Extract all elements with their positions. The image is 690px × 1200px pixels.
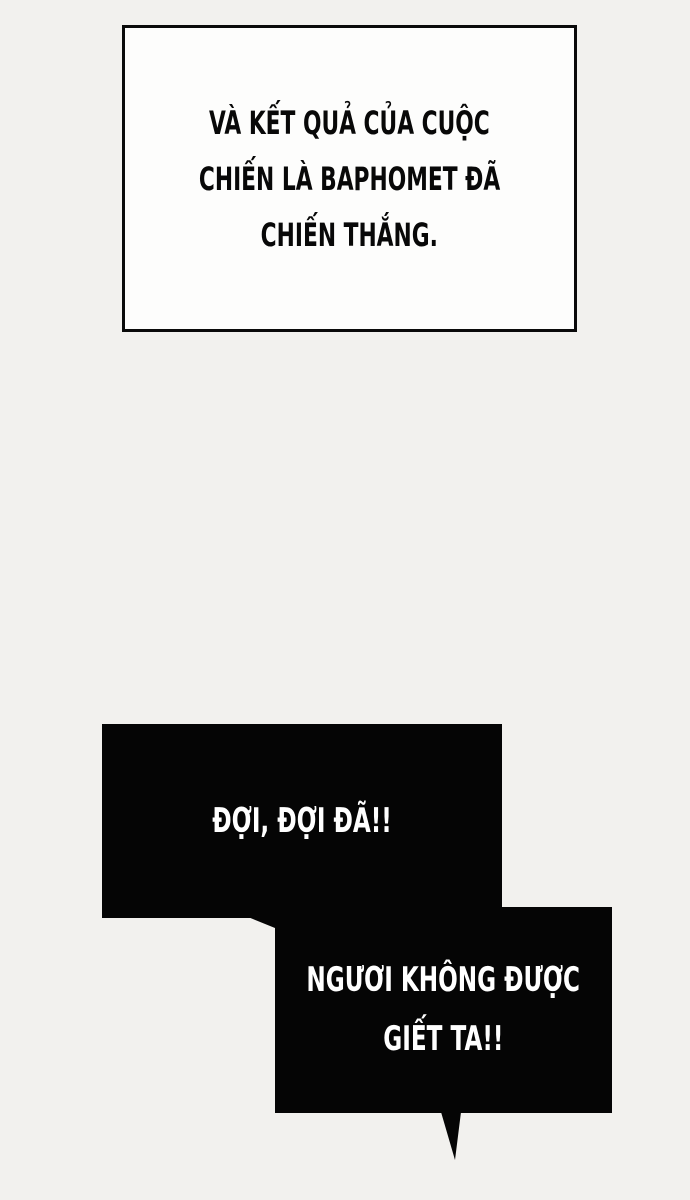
narration-line-1: VÀ KẾT QUẢ CỦA CUỘC xyxy=(209,95,490,151)
narration-line-3: CHIẾN THẮNG. xyxy=(261,207,438,263)
speech-bubble-1: ĐỢI, ĐỢI ĐÃ!! xyxy=(102,724,502,918)
speech-bubble-2-line-1: NGƯƠI KHÔNG ĐƯỢC xyxy=(307,951,581,1010)
speech-bubble-1-step xyxy=(248,917,275,928)
speech-bubble-2-tail-icon xyxy=(441,1112,461,1160)
speech-bubble-2: NGƯƠI KHÔNG ĐƯỢC GIẾT TA!! xyxy=(275,907,612,1113)
speech-bubble-1-line-1: ĐỢI, ĐỢI ĐÃ!! xyxy=(212,801,392,841)
speech-bubble-2-line-2: GIẾT TA!! xyxy=(383,1010,503,1069)
narration-box: VÀ KẾT QUẢ CỦA CUỘC CHIẾN LÀ BAPHOMET ĐÃ… xyxy=(122,25,577,332)
comic-page: VÀ KẾT QUẢ CỦA CUỘC CHIẾN LÀ BAPHOMET ĐÃ… xyxy=(0,0,690,1200)
narration-line-2: CHIẾN LÀ BAPHOMET ĐÃ xyxy=(199,151,500,207)
